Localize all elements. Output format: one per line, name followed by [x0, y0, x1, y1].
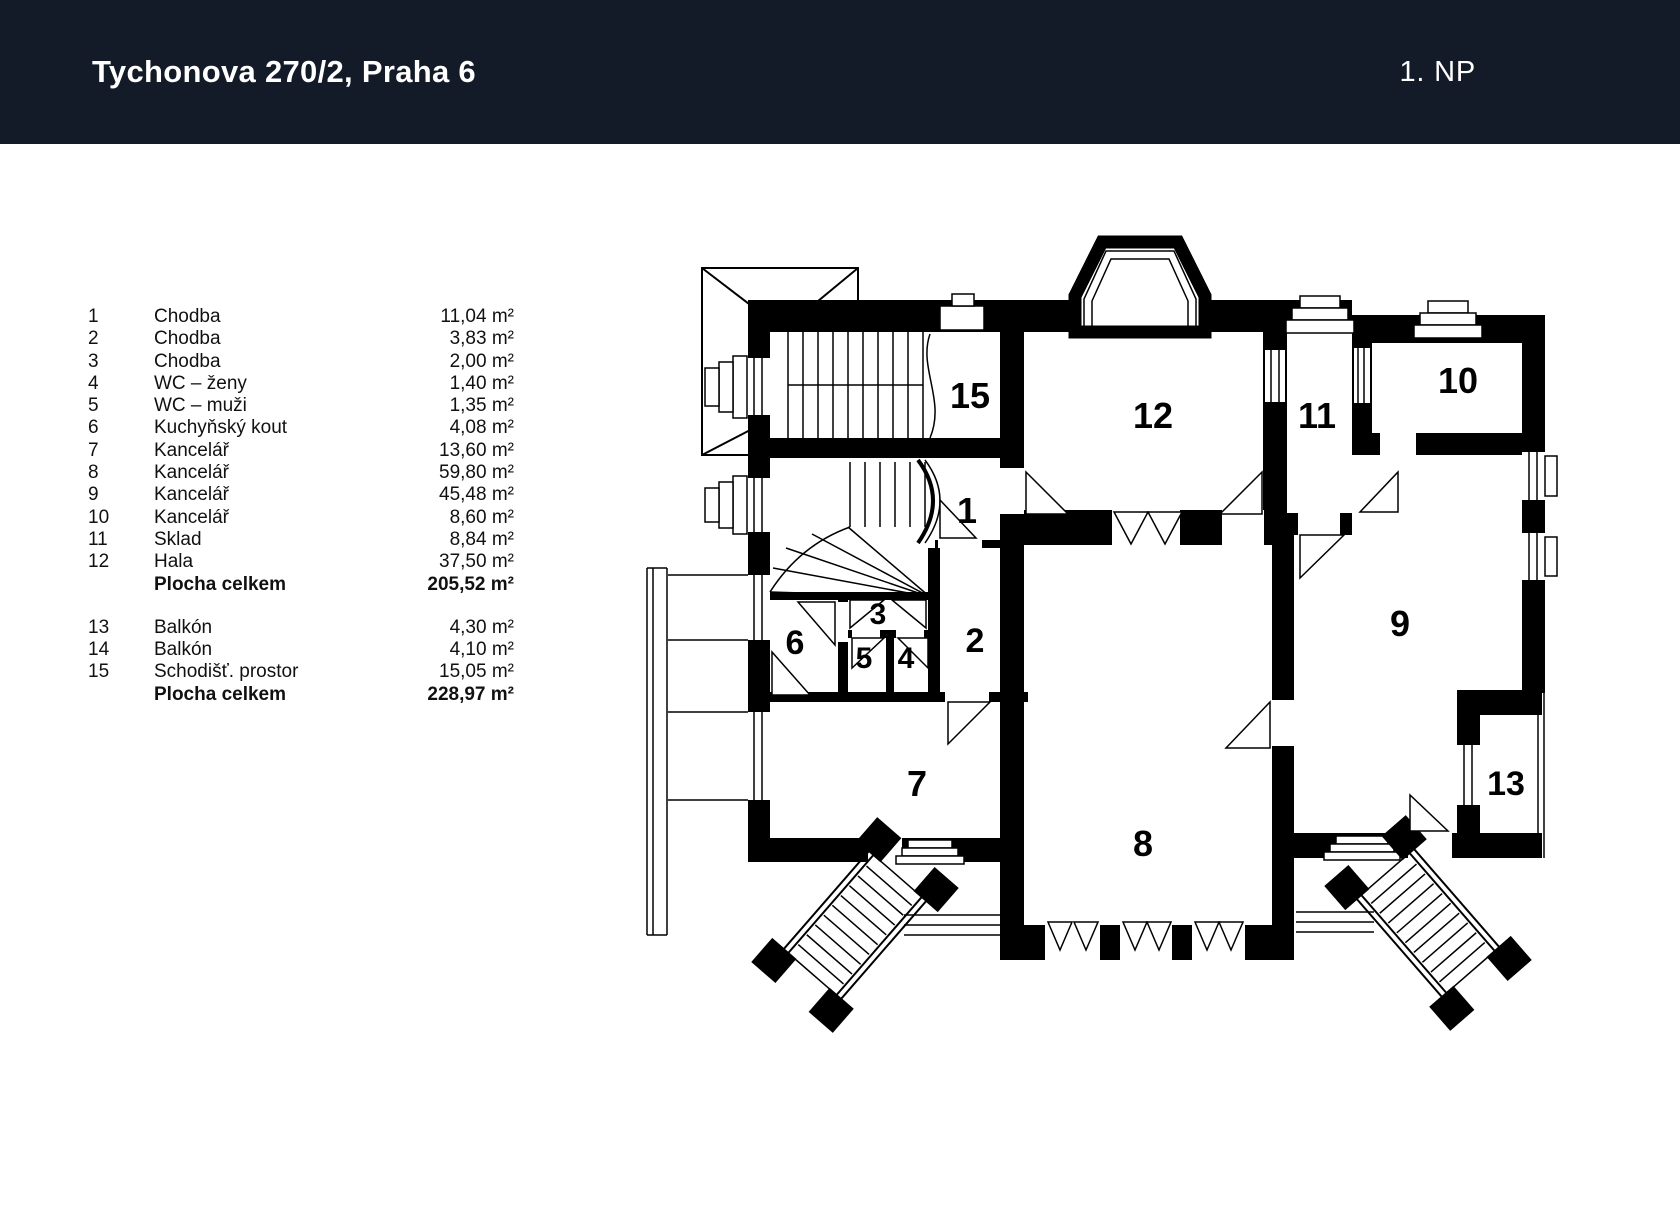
legend-row: 14Balkón4,10 m² [88, 639, 518, 661]
legend-row: 1Chodba11,04 m² [88, 306, 518, 328]
balcony-parapet [1538, 690, 1544, 858]
legend-row: 10Kancelář8,60 m² [88, 507, 518, 529]
legend-row: 9Kancelář45,48 m² [88, 484, 518, 506]
room-label: 3 [870, 598, 887, 631]
legend-row: 4WC – ženy1,40 m² [88, 373, 518, 395]
winder-staircase [770, 462, 930, 597]
floor-plan: 15 1 12 11 10 9 2 3 4 5 6 7 8 13 [640, 200, 1560, 1160]
legend-row: 11Sklad8,84 m² [88, 529, 518, 551]
room-label: 8 [1133, 823, 1153, 864]
room-label: 12 [1133, 395, 1173, 436]
room-legend: 1Chodba11,04 m² 2Chodba3,83 m² 3Chodba2,… [88, 306, 518, 706]
room-label: 6 [786, 624, 805, 662]
room-label: 10 [1438, 360, 1478, 401]
legend-row: 12Hala37,50 m² [88, 551, 518, 573]
legend-row: 5WC – muži1,35 m² [88, 395, 518, 417]
legend-row: 7Kancelář13,60 m² [88, 440, 518, 462]
room-label: 2 [966, 622, 985, 660]
room-label: 1 [957, 490, 977, 531]
room-label: 5 [856, 642, 873, 675]
legend-row: 6Kuchyňský kout4,08 m² [88, 417, 518, 439]
room-label: 11 [1298, 395, 1336, 436]
legend-spacer [88, 596, 518, 617]
legend-row: 13Balkón4,30 m² [88, 617, 518, 639]
room-label: 4 [898, 642, 915, 675]
header-bar: Tychonova 270/2, Praha 6 1. NP [0, 0, 1680, 144]
page: { "header": { "title": "Tychonova 270/2,… [0, 0, 1680, 1221]
bay-window [1075, 242, 1205, 332]
legend-row: 2Chodba3,83 m² [88, 328, 518, 350]
room-label: 7 [907, 763, 927, 804]
legend-total-row: Plocha celkem228,97 m² [88, 684, 518, 706]
page-title: Tychonova 270/2, Praha 6 [92, 54, 476, 90]
legend-total-row: Plocha celkem205,52 m² [88, 574, 518, 596]
legend-row: 15Schodišť. prostor15,05 m² [88, 661, 518, 683]
floor-label: 1. NP [1399, 56, 1476, 89]
room-label: 13 [1487, 765, 1525, 803]
room-label: 9 [1390, 603, 1410, 644]
curved-wall [918, 460, 940, 543]
legend-row: 8Kancelář59,80 m² [88, 462, 518, 484]
legend-row: 3Chodba2,00 m² [88, 351, 518, 373]
left-rail-strip [647, 568, 667, 935]
room-label: 15 [950, 375, 990, 416]
